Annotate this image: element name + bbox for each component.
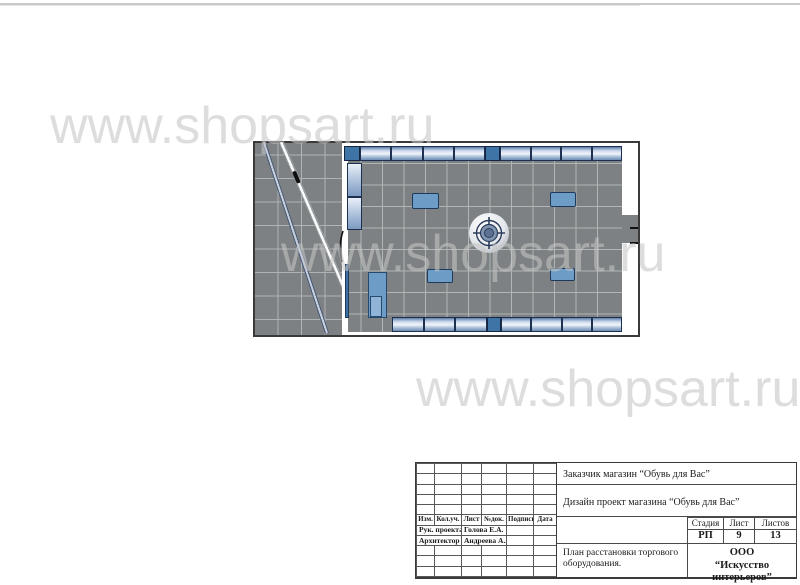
display-shelf xyxy=(423,146,454,161)
client-line: Заказчик магазин “Обувь для Вас” xyxy=(557,463,796,485)
cash-desk-inner xyxy=(370,296,382,317)
col-ndok: №док. xyxy=(482,515,507,525)
scan-edge-line-2 xyxy=(0,5,640,6)
col-list: Лист xyxy=(462,515,482,525)
table-row xyxy=(417,505,557,515)
display-shelf xyxy=(562,317,592,332)
sheet-label: Лист xyxy=(724,518,755,530)
wall-display-case-top xyxy=(360,146,485,161)
stage-value: РП xyxy=(688,530,724,544)
display-shelf xyxy=(454,146,485,161)
display-shelf xyxy=(424,317,456,332)
display-shelf xyxy=(360,146,391,161)
sheets-total: 13 xyxy=(755,530,797,544)
table-row: Рук. проекта Голова Е.А. xyxy=(417,525,557,535)
company-line-1: ООО xyxy=(688,547,796,560)
table-row xyxy=(417,474,557,484)
display-shelf xyxy=(531,317,561,332)
display-shelf xyxy=(347,197,362,231)
fitting-bench xyxy=(412,193,439,209)
company-name: ООО “Искусство интерьеров” xyxy=(687,544,796,577)
drawing-title: План расстановки торгового оборудования. xyxy=(557,544,687,577)
table-header-row: Изм. Кол.уч. Лист №док. Подпись Дата xyxy=(417,515,557,525)
display-shelf xyxy=(500,146,531,161)
col-koluch: Кол.уч. xyxy=(435,515,462,525)
display-shelf xyxy=(561,146,592,161)
table-row xyxy=(417,546,557,556)
empty-cell xyxy=(557,517,687,544)
table-row xyxy=(417,494,557,504)
role-name: Андреева А.А. xyxy=(462,535,507,545)
floor-plan xyxy=(253,141,640,337)
sheets-label: Листов xyxy=(755,518,797,530)
col-podpis: Подпись xyxy=(507,515,534,525)
display-shelf xyxy=(391,146,422,161)
project-line: Дизайн проект магазина “Обувь для Вас” xyxy=(557,485,796,517)
stairwell-area xyxy=(255,143,342,335)
title-block: Изм. Кол.уч. Лист №док. Подпись Дата Рук… xyxy=(415,462,797,579)
display-shelf xyxy=(501,317,531,332)
display-shelf xyxy=(592,317,622,332)
col-data: Дата xyxy=(534,515,557,525)
role-name: Голова Е.А. xyxy=(462,525,507,535)
stage-value-row: РП 9 13 xyxy=(688,530,797,544)
door-swing-icon xyxy=(334,230,346,264)
display-shelf xyxy=(531,146,562,161)
entrance-door-mark xyxy=(630,227,638,229)
wall-panel xyxy=(345,264,349,318)
display-divider-block xyxy=(485,146,500,161)
role-label: Архитектор xyxy=(417,535,462,545)
stage-label: Стадия xyxy=(688,518,724,530)
sheet-number: 9 xyxy=(724,530,755,544)
display-shelf xyxy=(455,317,487,332)
wall-display-case-bottom xyxy=(392,317,487,332)
display-shelf xyxy=(392,317,424,332)
table-row xyxy=(417,464,557,474)
round-ottoman xyxy=(466,210,512,256)
entrance-vestibule xyxy=(622,215,638,243)
fitting-bench xyxy=(550,268,575,281)
company-line-2: “Искусство интерьеров” xyxy=(688,560,796,585)
table-row xyxy=(417,556,557,566)
entrance-door-mark xyxy=(630,242,638,244)
display-shelf xyxy=(347,163,362,197)
col-izm: Изм. xyxy=(417,515,435,525)
wall-display-case-left xyxy=(347,163,362,230)
stage-header-row: Стадия Лист Листов xyxy=(688,518,797,530)
fitting-bench xyxy=(427,269,453,283)
table-row: Архитектор Андреева А.А. xyxy=(417,535,557,545)
fitting-bench xyxy=(550,192,576,207)
watermark-bottom: www.shopsart.ru xyxy=(416,363,800,415)
wall-display-case-top xyxy=(500,146,622,161)
display-divider-block xyxy=(344,146,360,161)
role-label: Рук. проекта xyxy=(417,525,462,535)
display-shelf xyxy=(592,146,623,161)
wall-display-case-bottom xyxy=(501,317,622,332)
table-row xyxy=(417,484,557,494)
display-divider-block xyxy=(487,317,501,332)
stage-table: Стадия Лист Листов РП 9 13 xyxy=(687,517,797,544)
table-row xyxy=(417,566,557,576)
title-block-right: Заказчик магазин “Обувь для Вас” Дизайн … xyxy=(556,463,796,577)
revision-table: Изм. Кол.уч. Лист №док. Подпись Дата Рук… xyxy=(416,463,557,577)
